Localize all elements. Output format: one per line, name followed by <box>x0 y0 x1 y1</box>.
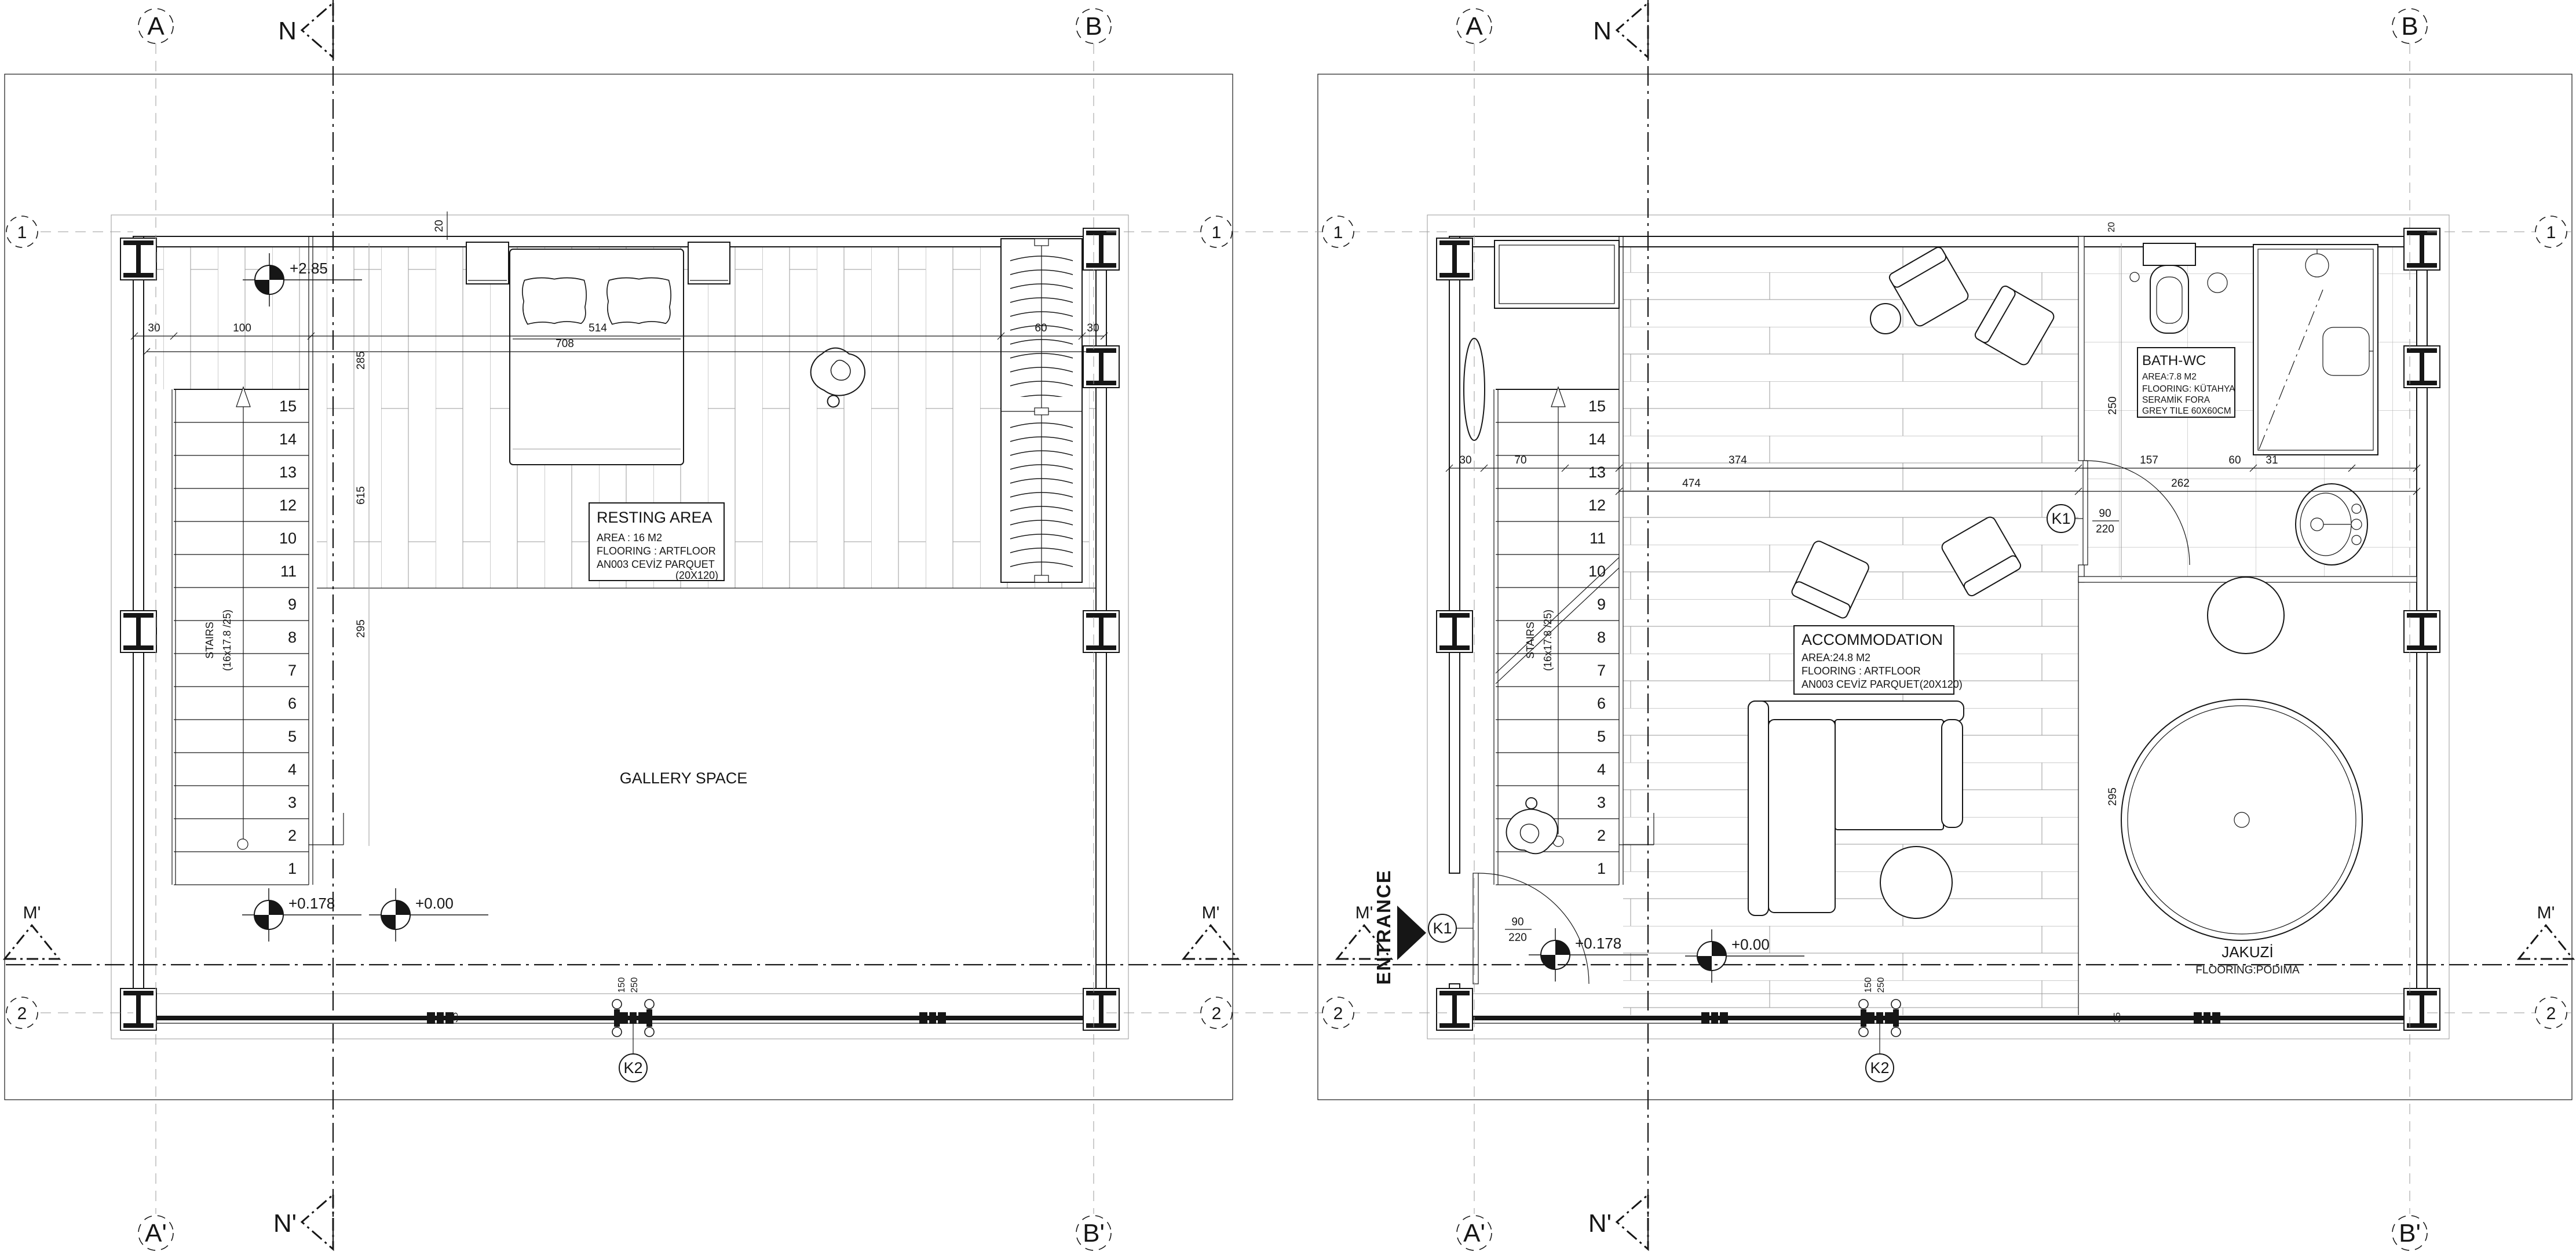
section-label-m: M' <box>2537 903 2555 922</box>
dim: 70 <box>1514 454 1526 466</box>
key-label-k1: K1 <box>1433 920 1452 937</box>
plan-drawing: 15 14 13 12 10 11 9 8 7 6 5 4 3 2 1 STAI… <box>0 0 2576 1255</box>
stair-number: 12 <box>279 497 297 514</box>
section-label-m: M' <box>1355 903 1373 922</box>
grid-row-2: 2 <box>2546 1004 2556 1023</box>
ibeam-column-icon <box>1083 611 1119 652</box>
dim: 708 <box>556 338 574 350</box>
key-label-k2: K2 <box>1870 1059 1889 1077</box>
grid-label-n-prime: N' <box>1588 1209 1612 1238</box>
up-arrow-icon <box>236 387 250 407</box>
dim: 35 <box>2113 1012 2122 1023</box>
dim: 250 <box>630 977 640 993</box>
nightstand <box>688 242 730 284</box>
room-line: AREA:7.8 M2 <box>2142 372 2197 382</box>
pillow-icon <box>522 278 586 324</box>
room-line: AREA:24.8 M2 <box>1802 652 1870 663</box>
stair-number: 5 <box>288 728 297 745</box>
section-triangle-icon <box>5 925 59 959</box>
ibeam-column-icon <box>1083 346 1119 388</box>
stair-number: 7 <box>288 662 297 679</box>
dim: 30 <box>1087 322 1099 334</box>
floor-plan-sheet: 15 14 13 12 10 11 9 8 7 6 5 4 3 2 1 STAI… <box>0 0 2576 1255</box>
door-size-h: 220 <box>1508 932 1527 944</box>
dim: 474 <box>1682 477 1701 490</box>
stair-number: 14 <box>1588 431 1606 448</box>
stair-number: 2 <box>288 827 297 844</box>
dim: 374 <box>1729 454 1747 466</box>
grid-row-2: 2 <box>1333 1004 1343 1023</box>
stair-number: 9 <box>1597 596 1606 613</box>
section-triangle-icon <box>2519 925 2573 959</box>
stair-number: 13 <box>1588 464 1606 481</box>
section-label-m: M' <box>23 903 41 922</box>
room-line: AN003 CEVİZ PARQUET(20X120) <box>1802 678 1963 690</box>
up-arrow-icon <box>1551 387 1565 407</box>
door-size-w: 90 <box>1511 916 1523 928</box>
dim: 157 <box>2140 454 2158 466</box>
grid-row-1: 1 <box>17 223 27 242</box>
stair-number: 12 <box>1588 497 1606 514</box>
level-value: +0.178 <box>1575 935 1621 952</box>
grid-label-n: N <box>278 17 297 45</box>
facade-fitting-icon <box>1701 1012 1728 1024</box>
ibeam-column-icon <box>2404 228 2440 270</box>
ibeam-column-icon <box>120 238 156 280</box>
section-label-m: M' <box>1202 903 1220 922</box>
room-line: (20X120) <box>675 570 718 581</box>
dim: 60 <box>2228 454 2241 466</box>
ibeam-column-icon <box>2404 346 2440 388</box>
room-line: AN003 CEVİZ PARQUET <box>597 559 715 570</box>
level-value: +0.00 <box>415 895 454 912</box>
dim: 514 <box>589 322 607 334</box>
gallery-space-label: GALLERY SPACE <box>620 769 748 787</box>
dim: 295 <box>2107 787 2119 806</box>
room-line: GREY TILE 60X60CM <box>2142 406 2231 416</box>
dim: 30 <box>148 322 160 334</box>
dim: 31 <box>2266 454 2278 466</box>
dim: 285 <box>355 351 367 370</box>
ibeam-column-icon <box>2404 988 2440 1030</box>
room-title: ACCOMMODATION <box>1802 631 1943 648</box>
grid-row-1: 1 <box>2546 223 2556 242</box>
door-leaf <box>2083 461 2088 565</box>
north-triangle-icon <box>302 3 333 57</box>
ibeam-column-icon <box>1083 228 1119 270</box>
room-title: BATH-WC <box>2142 353 2206 369</box>
jacuzzi-flooring: FLOORING:PODIMA <box>2195 964 2300 976</box>
dim: 20 <box>2107 222 2117 232</box>
facade-fitting-icon <box>919 1012 946 1024</box>
stair-number: 15 <box>1588 397 1606 415</box>
ibeam-column-icon <box>1437 988 1472 1030</box>
stair-number: 8 <box>1597 629 1606 646</box>
north-triangle-icon <box>1617 3 1648 57</box>
stool <box>2208 577 2284 654</box>
door-size-h: 220 <box>2096 523 2114 535</box>
grid-label-b: B <box>2401 12 2418 41</box>
dim: 60 <box>1035 322 1047 334</box>
stair-number: 11 <box>1590 530 1606 547</box>
stair-number: 13 <box>279 464 297 481</box>
dim: 615 <box>355 486 367 505</box>
stair-number: 9 <box>288 596 297 613</box>
jacuzzi <box>2121 577 2362 940</box>
ibeam-column-icon <box>1437 611 1472 652</box>
dim: 250 <box>1876 977 1886 993</box>
level-value: +0.178 <box>288 895 335 912</box>
grid-label-a-prime: A' <box>145 1219 167 1247</box>
stair-number: 2 <box>1597 827 1606 844</box>
ottoman <box>1880 847 1952 918</box>
ibeam-column-icon <box>120 988 156 1030</box>
north-triangle-icon <box>302 1195 333 1249</box>
resting-area-label: RESTING AREA AREA : 16 M2 FLOORING : ART… <box>589 503 724 581</box>
washbasin <box>2296 484 2367 565</box>
stair-number: 1 <box>288 860 297 877</box>
stair-number: 3 <box>288 794 297 811</box>
stair-number: 3 <box>1597 794 1606 811</box>
stair-number: 11 <box>280 563 297 580</box>
pillow-icon <box>607 278 671 324</box>
stair-number: 8 <box>288 629 297 646</box>
dim: 262 <box>2171 477 2190 490</box>
stairs-label: STAIRS <box>1525 622 1536 659</box>
grid-label-a-prime: A' <box>1463 1219 1485 1247</box>
nightstand <box>466 242 509 284</box>
right-plan: 15 14 13 12 11 10 9 8 7 6 5 4 3 2 1 STAI… <box>1318 74 2572 1100</box>
ibeam-column-icon <box>1437 238 1472 280</box>
room-line: FLOORING : ARTFLOOR <box>597 545 716 557</box>
stair-number: 4 <box>1597 761 1606 778</box>
facade-fitting-icon <box>2194 1012 2220 1024</box>
shower <box>2253 245 2378 455</box>
door-leaf <box>1473 873 1478 984</box>
stair-number: 14 <box>279 431 297 448</box>
room-line: SERAMİK FORA <box>2142 395 2210 405</box>
bath-label: BATH-WC AREA:7.8 M2 FLOORING: KÜTAHYA SE… <box>2137 348 2235 417</box>
accommodation-label: ACCOMMODATION AREA:24.8 M2 FLOORING : AR… <box>1794 626 1963 694</box>
room-line: FLOORING: KÜTAHYA <box>2142 384 2235 394</box>
room-line: AREA : 16 M2 <box>597 532 662 543</box>
ibeam-column-icon <box>120 611 156 652</box>
stair-number: 10 <box>279 530 297 547</box>
stair-number: 7 <box>1597 662 1606 679</box>
stair-numbers: 15 14 13 12 10 11 9 8 7 6 5 4 3 2 1 <box>279 397 297 877</box>
left-plan: 15 14 13 12 10 11 9 8 7 6 5 4 3 2 1 STAI… <box>5 74 1233 1100</box>
entrance-door <box>1473 873 1589 984</box>
entrance-arrow-icon <box>1397 906 1426 960</box>
grid-row-2: 2 <box>17 1004 27 1023</box>
level-value: +0.00 <box>1731 936 1770 953</box>
dim: 35 <box>450 1012 460 1023</box>
stair-number: 1 <box>1597 860 1606 877</box>
grid-system: A N B A N B A' N' B' A' N' B' 1 1 1 1 2 … <box>5 0 2573 1255</box>
dim: 20 <box>433 220 445 232</box>
dim: 30 <box>1459 454 1471 466</box>
side-table <box>1870 304 1901 334</box>
wardrobe <box>1001 239 1082 582</box>
dim: 150 <box>617 977 627 993</box>
grid-label-a: A <box>1466 12 1483 41</box>
grid-label-b-prime: B' <box>2399 1219 2421 1247</box>
grid-label-n-prime: N' <box>273 1209 297 1238</box>
stair-number: 15 <box>279 397 297 415</box>
room-line: FLOORING : ARTFLOOR <box>1802 665 1921 677</box>
door-size-w: 90 <box>2099 508 2111 520</box>
entrance-label: ENTRANCE <box>1373 869 1394 984</box>
key-label-k2: K2 <box>623 1059 642 1077</box>
section-triangle-icon <box>1183 925 1238 959</box>
grid-label-b: B <box>1085 12 1102 41</box>
stair-number: 6 <box>288 695 297 712</box>
stairs-spec: (16x17.8 /25) <box>221 610 233 671</box>
dim: 150 <box>1864 977 1873 993</box>
stair-numbers: 15 14 13 12 11 10 9 8 7 6 5 4 3 2 1 <box>1588 397 1606 877</box>
grid-label-n: N <box>1593 17 1612 45</box>
dim: 250 <box>2107 396 2119 415</box>
stairs-label: STAIRS <box>204 622 215 659</box>
stair-number: 10 <box>1588 563 1606 580</box>
ibeam-column-icon <box>1083 988 1119 1030</box>
dim: 295 <box>355 619 367 638</box>
wall-console <box>1464 338 1485 440</box>
stair-number: 4 <box>288 761 297 778</box>
grid-row-1: 1 <box>1333 223 1343 242</box>
stairs-spec: (16x17.8 /25) <box>1542 610 1554 671</box>
key-label-k1: K1 <box>2051 510 2070 527</box>
grid-label-b-prime: B' <box>1083 1219 1105 1247</box>
north-triangle-icon <box>1617 1195 1648 1249</box>
dim: 100 <box>233 322 251 334</box>
stair-number: 6 <box>1597 695 1606 712</box>
grid-row-2: 2 <box>1212 1004 1222 1023</box>
cabinet <box>1495 240 1619 308</box>
stair-number: 5 <box>1597 728 1606 745</box>
ibeam-column-icon <box>2404 611 2440 652</box>
level-value: +2.85 <box>290 260 328 277</box>
room-title: RESTING AREA <box>597 509 712 526</box>
person-figure <box>1505 796 1561 856</box>
jacuzzi-label: JAKUZİ <box>2221 943 2274 961</box>
door-swing-arc <box>1478 873 1589 984</box>
grid-row-1: 1 <box>1212 223 1222 242</box>
grid-label-a: A <box>147 12 165 41</box>
